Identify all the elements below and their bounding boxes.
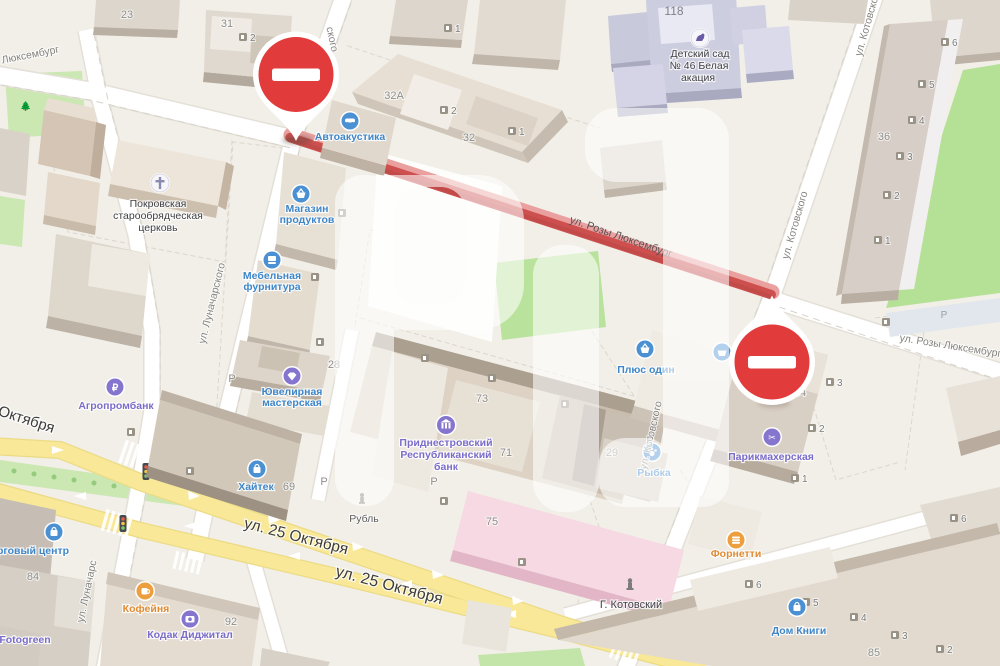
svg-text:Р: Р <box>228 373 235 385</box>
svg-text:Хайтек: Хайтек <box>238 481 274 493</box>
svg-text:73: 73 <box>476 393 488 405</box>
svg-text:1: 1 <box>455 24 461 35</box>
svg-text:85: 85 <box>868 647 880 659</box>
svg-text:5: 5 <box>813 598 819 609</box>
svg-text:36: 36 <box>878 131 890 143</box>
svg-text:71: 71 <box>500 447 512 459</box>
svg-text:Кодак Диджитал: Кодак Диджитал <box>147 629 233 641</box>
svg-text:3: 3 <box>907 152 913 163</box>
svg-text:Дом Книги: Дом Книги <box>772 625 827 637</box>
svg-text:банк: банк <box>434 461 459 473</box>
svg-text:75: 75 <box>486 516 498 528</box>
svg-text:69: 69 <box>283 481 295 493</box>
svg-text:Г. Котовский: Г. Котовский <box>600 599 662 611</box>
svg-text:Р: Р <box>941 310 948 321</box>
svg-text:1: 1 <box>885 236 891 247</box>
svg-text:Автоакустика: Автоакустика <box>315 131 386 143</box>
svg-text:3: 3 <box>902 631 908 642</box>
svg-text:2: 2 <box>451 106 457 117</box>
svg-text:118: 118 <box>664 4 683 18</box>
svg-text:Парикмахерская: Парикмахерская <box>728 451 814 463</box>
svg-text:рговый центр: рговый центр <box>0 545 69 557</box>
svg-text:Республиканский: Республиканский <box>400 449 491 461</box>
svg-text:6: 6 <box>756 580 762 591</box>
svg-text:Рубль: Рубль <box>349 513 379 525</box>
svg-text:23: 23 <box>121 9 133 21</box>
svg-text:5: 5 <box>929 80 935 91</box>
svg-text:фурнитура: фурнитура <box>243 281 300 293</box>
svg-text:Р: Р <box>430 476 437 488</box>
svg-text:₽: ₽ <box>112 383 119 394</box>
svg-text:3: 3 <box>837 378 843 389</box>
svg-text:Приднестровский: Приднестровский <box>399 437 492 449</box>
svg-text:Форнетти: Форнетти <box>711 548 762 560</box>
svg-text:церковь: церковь <box>138 222 178 234</box>
svg-text:2: 2 <box>947 645 953 656</box>
svg-text:4: 4 <box>861 613 867 624</box>
svg-text:4: 4 <box>919 116 925 127</box>
svg-text:✂: ✂ <box>768 433 776 443</box>
svg-text:Покровская: Покровская <box>130 198 187 210</box>
svg-text:6: 6 <box>961 514 967 525</box>
svg-text:32: 32 <box>463 132 475 144</box>
svg-text:старообрядческая: старообрядческая <box>113 210 203 222</box>
svg-text:31: 31 <box>221 18 233 30</box>
svg-text:Кофейня: Кофейня <box>123 603 170 615</box>
svg-text:мастерская: мастерская <box>262 397 322 409</box>
svg-text:🌲: 🌲 <box>20 100 31 111</box>
svg-text:2: 2 <box>819 424 825 435</box>
svg-text:Fotogreen: Fotogreen <box>0 634 51 646</box>
svg-text:1: 1 <box>802 474 808 485</box>
svg-text:акация: акация <box>681 72 715 84</box>
svg-text:2: 2 <box>894 191 900 202</box>
svg-text:84: 84 <box>27 571 39 583</box>
svg-text:продуктов: продуктов <box>280 214 335 226</box>
svg-text:№ 46 Белая: № 46 Белая <box>670 60 729 72</box>
svg-text:92: 92 <box>225 616 237 628</box>
svg-text:2: 2 <box>250 33 256 44</box>
svg-text:1: 1 <box>519 127 525 138</box>
svg-text:6: 6 <box>952 38 958 49</box>
svg-text:32А: 32А <box>384 90 404 102</box>
svg-text:Агропромбанк: Агропромбанк <box>78 400 154 412</box>
svg-text:Детский сад: Детский сад <box>670 48 729 60</box>
svg-text:Р: Р <box>320 476 327 488</box>
